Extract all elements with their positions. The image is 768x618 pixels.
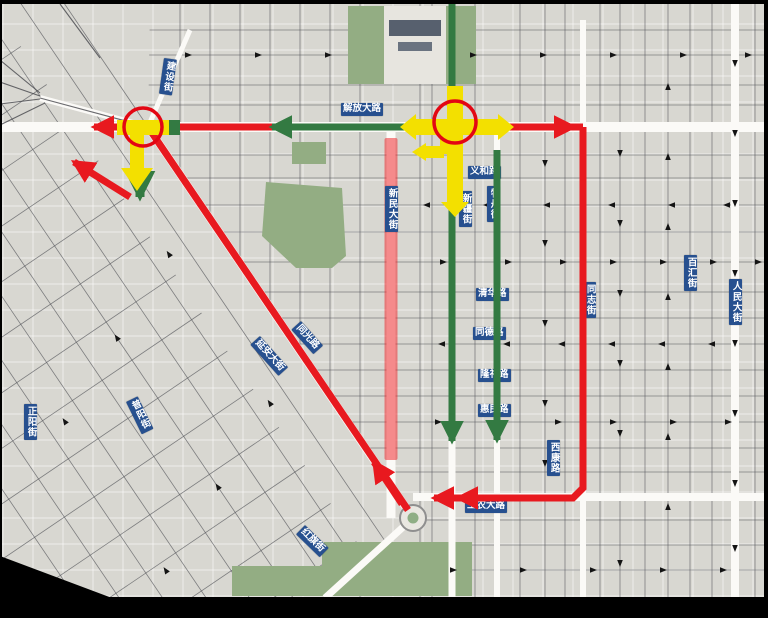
street-label-longli-lu: 隆礼路: [478, 369, 511, 382]
street-label-xinmin-dajie: 新民大街: [385, 186, 398, 232]
street-label-xinjiang-jie: 新疆街: [459, 191, 472, 227]
street-label-qinghua-lu: 清华路: [476, 288, 509, 301]
street-label-tongde-lu: 同德路: [473, 327, 506, 340]
frame-bar-left: [0, 0, 2, 618]
street-label-yanan-dajie: 延安大街: [251, 336, 288, 376]
street-label-huimin-lu: 惠民路: [478, 404, 511, 417]
street-label-renmin-dajie: 人民大街: [729, 279, 742, 325]
street-label-puyang-jie: 普阳街: [126, 396, 153, 433]
street-label-jianshe-jie: 建设街: [159, 58, 176, 95]
street-label-tongguang-lu: 同光路: [292, 321, 323, 354]
screenshot-frame: 解放大路建设街正阳街新民大街新疆街牡丹街义和路清华路同德路隆礼路惠民路同志街西康…: [0, 0, 768, 618]
street-label-jiefang-dalu: 解放大路: [341, 103, 383, 116]
street-label-mudan-jie: 牡丹街: [487, 186, 500, 222]
street-label-gongnong-dalu: 工农大路: [465, 500, 507, 513]
frame-bar-top: [0, 0, 768, 4]
street-label-yihe-lu: 义和路: [468, 166, 501, 179]
street-label-baihui-jie: 百汇街: [684, 255, 697, 291]
street-label-xikang-lu: 西康路: [547, 440, 560, 476]
street-label-tongzhi-jie: 同志街: [583, 282, 596, 318]
street-label-zhengyang-jie: 正阳街: [24, 404, 37, 440]
street-label-hongqi-jie: 红旗街: [296, 525, 328, 557]
street-labels: 解放大路建设街正阳街新民大街新疆街牡丹街义和路清华路同德路隆礼路惠民路同志街西康…: [0, 0, 768, 618]
frame-bar-right: [764, 0, 768, 618]
frame-bar-bottom: [0, 597, 768, 618]
